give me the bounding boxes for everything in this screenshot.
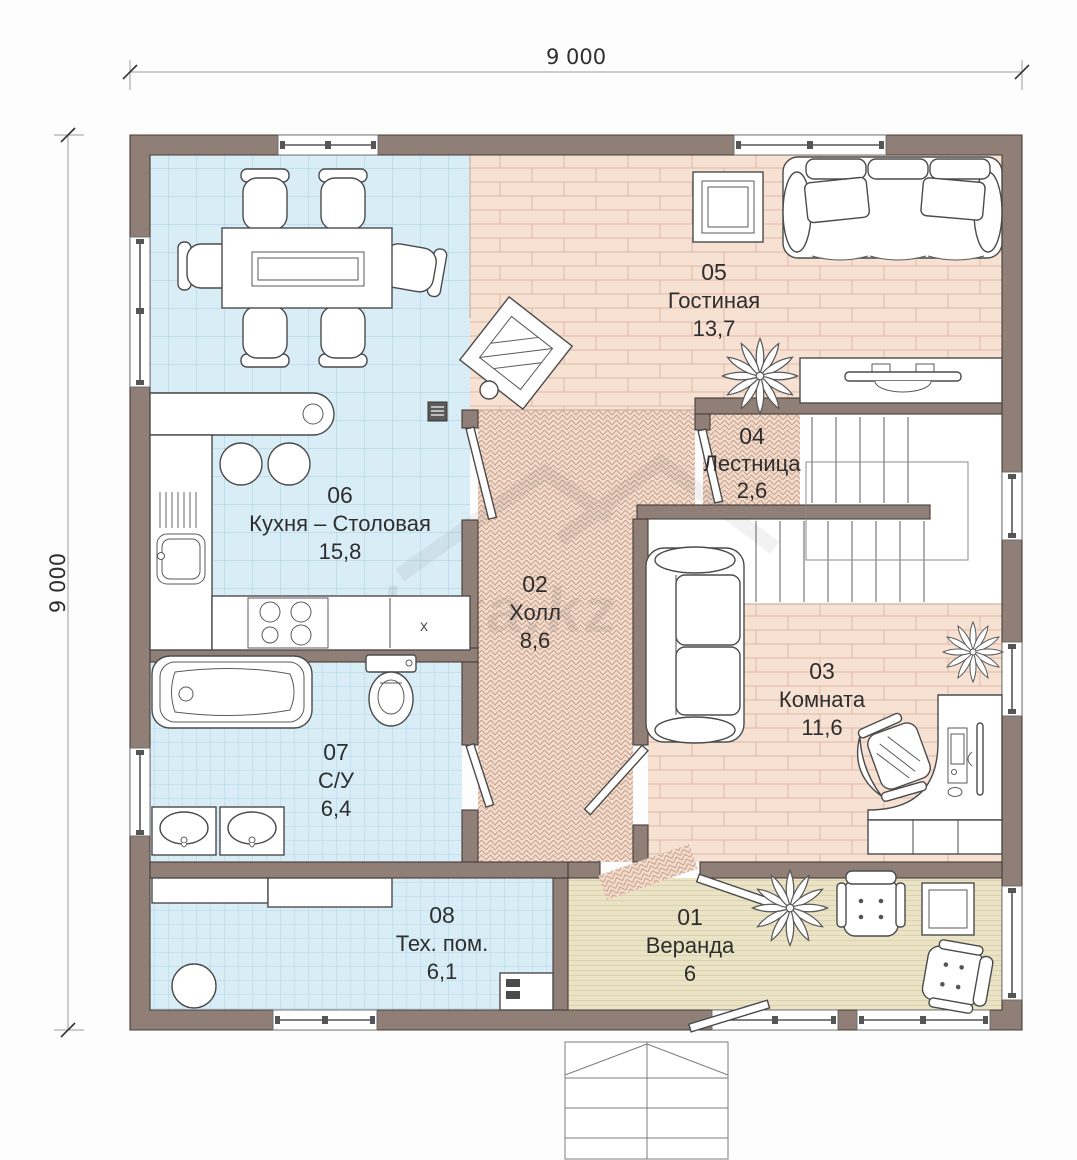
svg-text:2,6: 2,6 — [737, 478, 768, 503]
sofa-room — [646, 547, 744, 743]
peninsula-sink — [303, 404, 323, 424]
bathtub-drain — [179, 687, 193, 701]
svg-text:13,7: 13,7 — [693, 316, 736, 341]
svg-text:Тех. пом.: Тех. пом. — [396, 931, 489, 956]
window-kitchen-left — [130, 237, 150, 387]
svg-text:15,8: 15,8 — [319, 539, 362, 564]
window-veranda-right — [1002, 886, 1022, 1000]
window-kitchen-top — [278, 135, 378, 155]
burner — [262, 627, 278, 643]
dimension-top-label: 9 000 — [546, 45, 606, 69]
svg-text:8,6: 8,6 — [520, 628, 551, 653]
entrance-steps — [565, 1042, 728, 1159]
dining-chair — [319, 169, 367, 230]
boiler — [172, 964, 216, 1008]
svg-text:6,4: 6,4 — [321, 796, 352, 821]
svg-text:08: 08 — [429, 902, 455, 928]
kitchen-stool — [220, 443, 262, 485]
tech-shelf — [152, 878, 268, 903]
washing-machine — [500, 973, 553, 1010]
window-living-top — [734, 135, 886, 155]
dining-chair — [241, 306, 289, 367]
dining-chair — [241, 169, 289, 230]
svg-text:Комната: Комната — [779, 687, 866, 712]
side-table — [693, 172, 763, 242]
svg-text:04: 04 — [739, 423, 765, 449]
sink-tap — [158, 553, 165, 560]
veranda-table — [922, 883, 974, 935]
window-room-right — [1002, 642, 1022, 716]
svg-text:02: 02 — [522, 571, 548, 597]
svg-text:05: 05 — [701, 259, 727, 285]
vent — [428, 402, 447, 421]
svg-text:06: 06 — [327, 482, 353, 508]
floor-plan-page: 9 000 9 000 hata.kz — [0, 0, 1077, 1160]
monitor — [977, 723, 983, 795]
tv — [845, 372, 961, 381]
mouse — [948, 788, 962, 797]
floor-plan: 9 000 9 000 hata.kz — [0, 0, 1077, 1160]
kitchen-stool — [268, 443, 310, 485]
dimension-left-label: 9 000 — [46, 553, 70, 613]
fireplace-knob — [480, 381, 498, 399]
tech-shelf — [268, 878, 392, 907]
svg-text:6: 6 — [684, 961, 696, 986]
svg-text:11,6: 11,6 — [801, 715, 842, 740]
svg-text:07: 07 — [323, 739, 349, 765]
svg-text:Холл: Холл — [509, 600, 561, 625]
burner — [291, 602, 311, 622]
svg-text:Кухня – Столовая: Кухня – Столовая — [249, 511, 431, 536]
sofa-living — [783, 157, 1002, 260]
svg-text:Лестница: Лестница — [703, 451, 801, 476]
window-stairs-right — [1002, 472, 1022, 540]
burner — [260, 602, 280, 622]
stove — [248, 598, 328, 648]
window-tech-bottom — [273, 1010, 377, 1030]
toilet — [366, 655, 416, 726]
svg-text:Гостиная: Гостиная — [668, 288, 760, 313]
svg-text:С/У: С/У — [318, 768, 355, 793]
tv-stand — [800, 358, 1002, 403]
hall-floor-lower — [478, 519, 633, 862]
burner — [291, 625, 311, 645]
window-bathroom-left — [130, 748, 150, 836]
cabinet-mark: х — [420, 618, 428, 635]
svg-text:01: 01 — [677, 904, 703, 930]
svg-text:Веранда: Веранда — [646, 933, 735, 958]
dining-chair — [319, 306, 367, 367]
veranda-chair — [837, 871, 905, 936]
bathtub — [152, 656, 312, 728]
svg-text:03: 03 — [809, 658, 835, 684]
svg-text:6,1: 6,1 — [427, 959, 458, 984]
